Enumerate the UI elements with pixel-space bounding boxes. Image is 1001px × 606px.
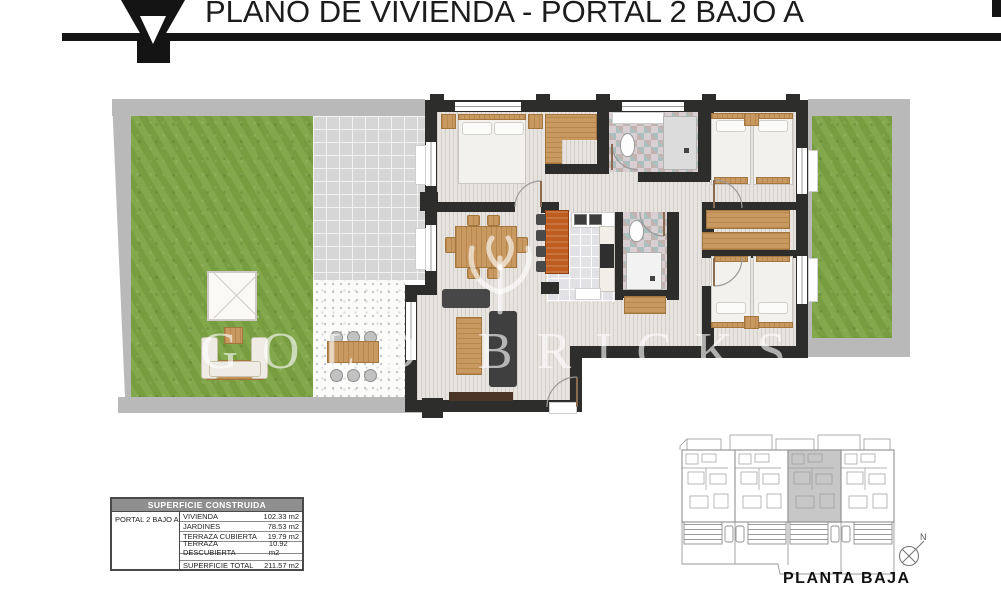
header-rule <box>62 33 1001 41</box>
area-table-unit-label: PORTAL 2 BAJO A <box>112 512 180 570</box>
area-table: SUPERFICIE CONSTRUIDA PORTAL 2 BAJO A VI… <box>110 497 304 571</box>
area-row-label: SUPERFICIE TOTAL <box>183 561 253 570</box>
header: PLANO DE VIVIENDA - PORTAL 2 BAJO A <box>0 0 1001 80</box>
floor-plan: GOLD BRICKS <box>0 90 1001 430</box>
compass-icon <box>900 541 925 566</box>
area-row-terraza-descubierta: TERRAZA DESCUBIERTA 10.92 m2 <box>180 542 302 554</box>
area-row-value: 102.33 m2 <box>264 512 299 521</box>
page-title: PLANO DE VIVIENDA - PORTAL 2 BAJO A <box>205 0 804 30</box>
area-table-title: SUPERFICIE CONSTRUIDA <box>112 499 302 512</box>
area-row-value: 78.53 m2 <box>268 522 299 531</box>
area-row-jardines: JARDINES 78.53 m2 <box>180 522 302 532</box>
compass-north-label: N <box>920 532 927 542</box>
brand-logo-inner-triangle <box>140 16 166 44</box>
watermark-text: GOLD BRICKS <box>95 322 915 381</box>
area-row-vivienda: VIVIENDA 102.33 m2 <box>180 512 302 522</box>
site-plan-caption: PLANTA BAJA <box>783 570 911 588</box>
highlighted-unit <box>788 450 841 522</box>
site-key-plan: N <box>678 432 928 582</box>
floor-plan-page: PLANO DE VIVIENDA - PORTAL 2 BAJO A <box>0 0 1001 606</box>
area-row-value: 211.57 m2 <box>264 561 299 570</box>
watermark-emblem-icon <box>471 238 529 312</box>
area-row-total: SUPERFICIE TOTAL 211.57 m2 <box>180 560 302 570</box>
area-row-label: VIVIENDA <box>183 512 218 521</box>
header-corner-block <box>992 0 1001 17</box>
area-row-label: JARDINES <box>183 522 220 531</box>
